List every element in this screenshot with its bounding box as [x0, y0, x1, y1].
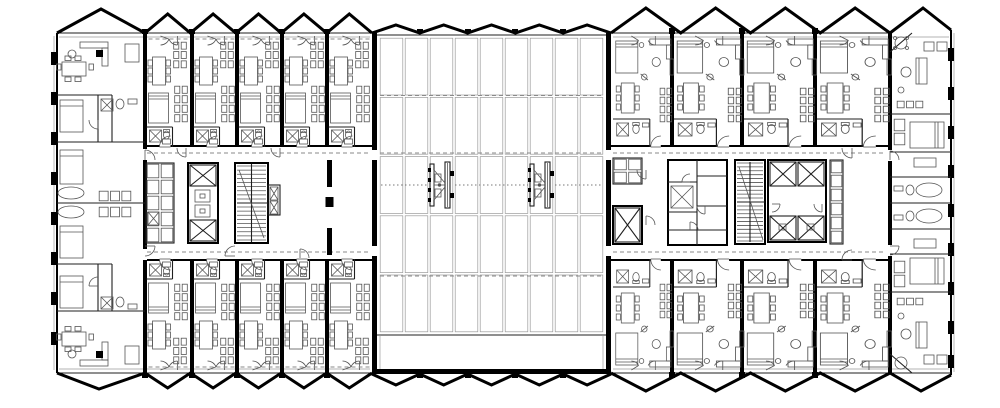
- unit-s-stamp: [284, 259, 326, 370]
- corner-unit-left-top: [57, 42, 156, 203]
- facade-zigzag-bottom: [57, 372, 951, 391]
- floor-plan: [0, 0, 1000, 408]
- units-right-bottom: [613, 259, 892, 370]
- unit-s-stamp: [147, 259, 189, 370]
- units-right-top: [613, 36, 892, 147]
- unit-s-stamp: [239, 36, 281, 147]
- core-right: [613, 148, 852, 260]
- units-left-bottom: [147, 259, 371, 370]
- atrium: [372, 35, 611, 374]
- unit-m-stamp: [817, 36, 892, 147]
- unit-s-stamp: [194, 36, 236, 147]
- unit-s-stamp: [239, 259, 281, 370]
- corner-unit-right-bottom: [890, 209, 951, 373]
- unit-m-stamp: [674, 36, 744, 147]
- core-left: [146, 148, 334, 258]
- unit-m-stamp: [817, 259, 892, 370]
- unit-m-stamp: [674, 259, 744, 370]
- unit-s-stamp: [329, 259, 371, 370]
- unit-s-stamp: [147, 36, 189, 147]
- corner-unit-right-top: [890, 33, 951, 203]
- unit-m-stamp: [744, 36, 817, 147]
- floor-plan-image: [0, 0, 1000, 408]
- divider-stamp: [528, 162, 554, 208]
- unit-s-stamp: [194, 259, 236, 370]
- unit-m-stamp: [744, 259, 817, 370]
- facade-zigzag-top: [57, 8, 951, 34]
- unit-s-stamp: [284, 36, 326, 147]
- divider-stamp: [428, 162, 454, 208]
- units-left-top: [147, 36, 371, 147]
- unit-s-stamp: [329, 36, 371, 147]
- unit-m-stamp: [613, 259, 674, 370]
- unit-m-stamp: [613, 36, 674, 147]
- corner-unit-left-bottom: [57, 206, 156, 366]
